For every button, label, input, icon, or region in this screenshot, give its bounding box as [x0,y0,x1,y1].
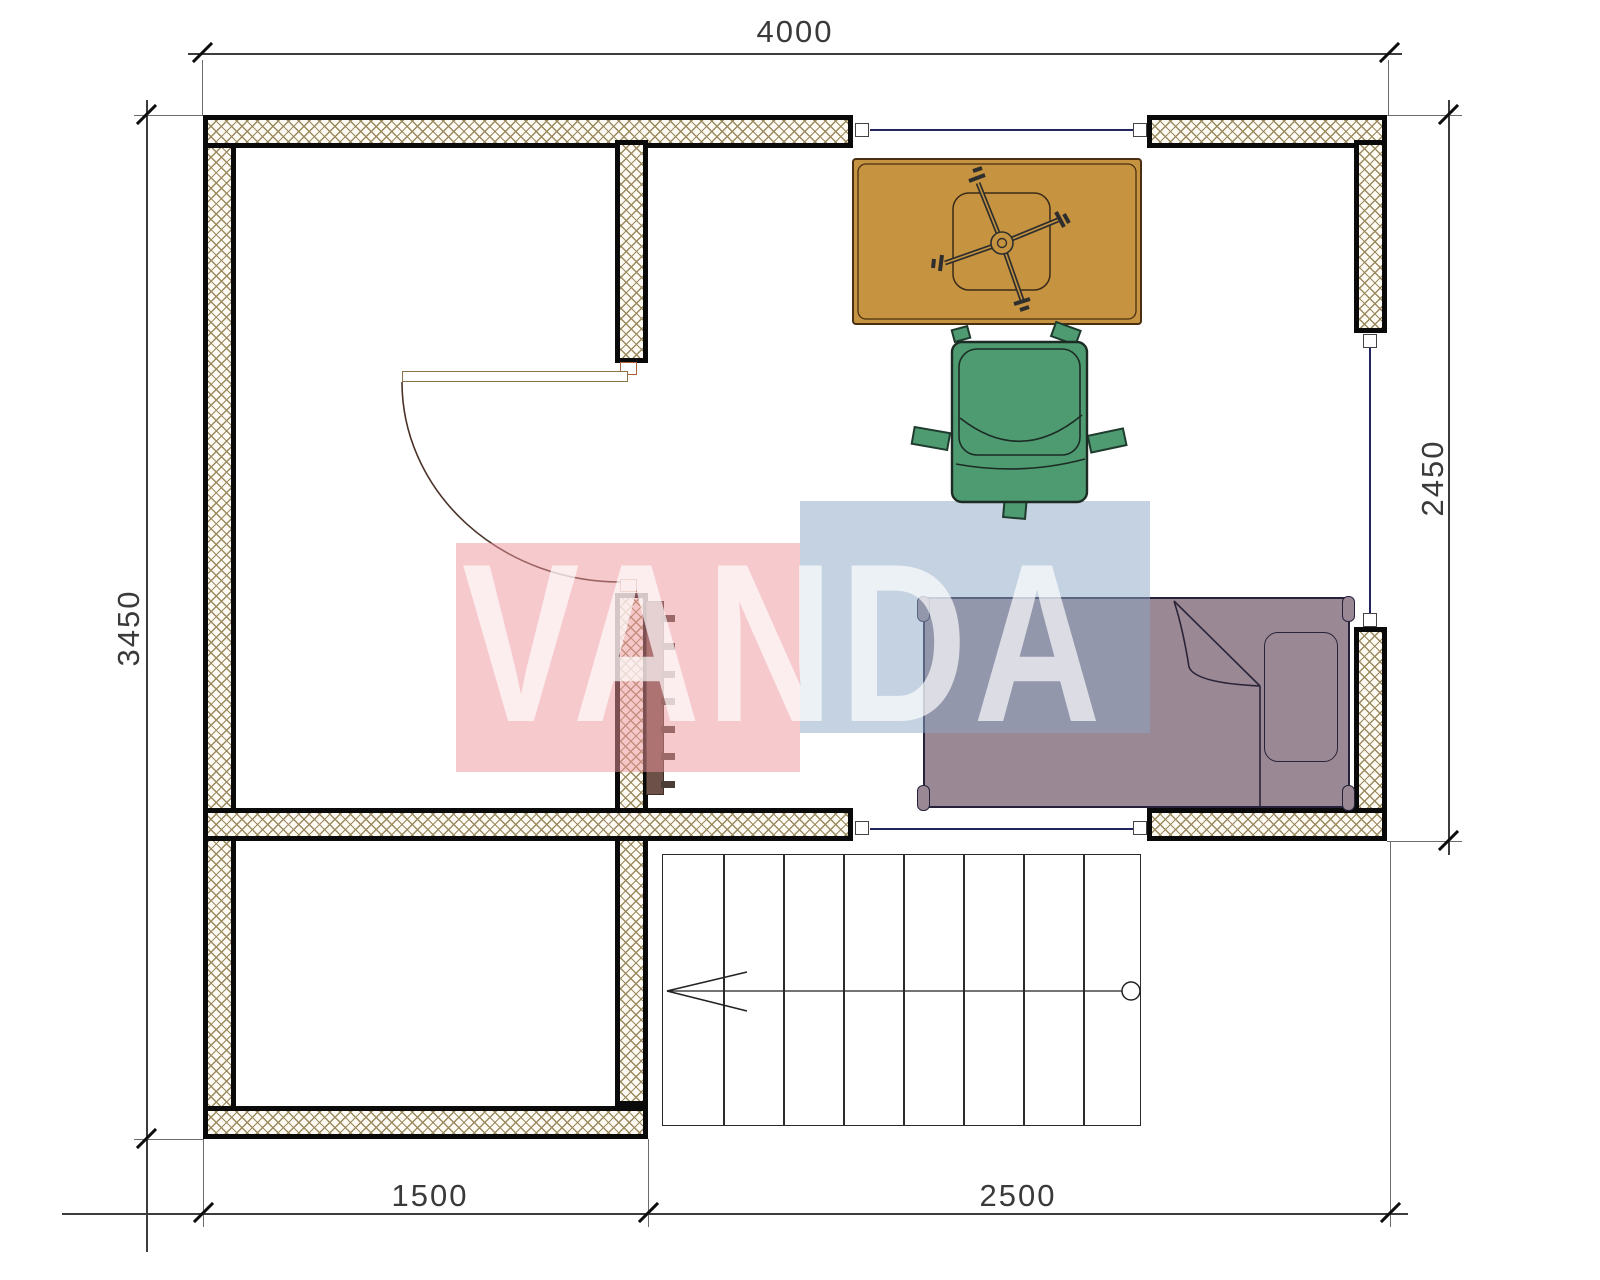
desk [852,158,1142,325]
office-chair-base-icon [852,158,1142,325]
floor-plan-canvas: 4000 3450 2450 1500 2500 [0,0,1600,1280]
office-chair [905,318,1135,543]
watermark-text: VANDA [462,530,1107,756]
